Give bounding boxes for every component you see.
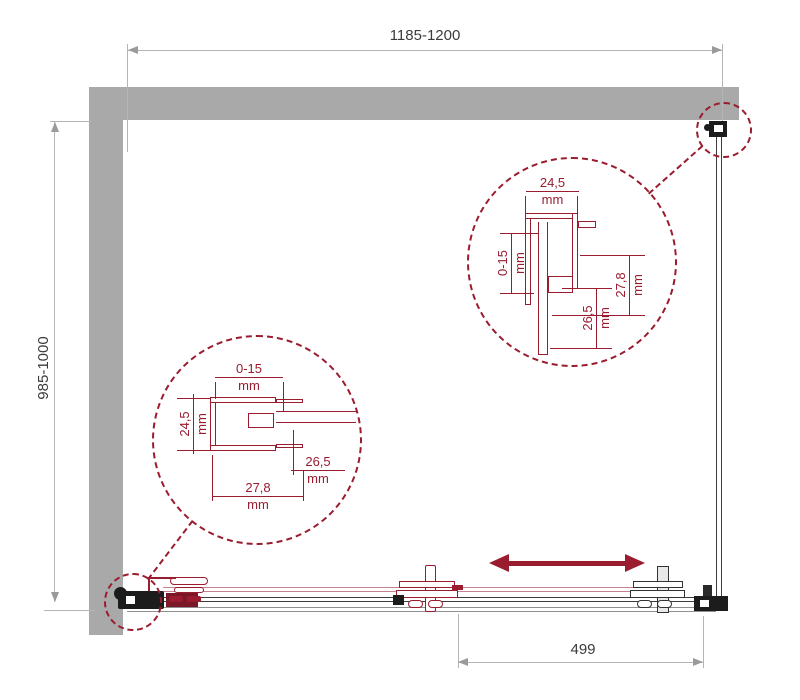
detail-tr-dim-profile-depth: 27,8 mm [613, 255, 645, 315]
dim-value: 24,5 [540, 176, 565, 190]
detail-tr-ext-5 [580, 255, 645, 256]
dim-value: 0-15 [236, 362, 262, 376]
dim-value: 24,5 [178, 411, 192, 436]
dimension-width-label: 1185-1200 [355, 27, 495, 44]
middle-carriage-pin [452, 585, 463, 590]
dim-unit: mm [513, 252, 527, 274]
detail-l-ext-3 [177, 398, 210, 399]
detail-l-dim-profile-width: 24,5 mm [177, 394, 209, 454]
detail-tr-ext-7 [562, 288, 612, 289]
detail-l-ext-5 [293, 430, 294, 475]
wall-profile-glass [538, 222, 548, 355]
detail-l-ext-7 [303, 470, 304, 501]
dimension-width-ext-left [127, 44, 128, 152]
dimension-depth-ext-bottom [44, 610, 95, 611]
dimension-depth-label: 985-1000 [35, 298, 53, 438]
bottom-right-corner-slot [700, 600, 709, 607]
callout-ring-bottom-left [104, 573, 162, 631]
dim-unit: mm [247, 498, 269, 512]
dimension-door-label: 499 [553, 641, 613, 658]
detail-tr-ext-8 [550, 348, 612, 349]
left-roller-mid [174, 587, 204, 593]
detail-l-ext-4 [177, 450, 210, 451]
detail-l-ext-1 [215, 382, 216, 399]
dimension-door-ext-right [703, 616, 704, 668]
dim-unit: mm [631, 274, 645, 296]
door-profile-glass [276, 411, 356, 423]
detail-tr-dim-profile-width: 24,5 mm [526, 176, 579, 206]
dimension-door-line [458, 662, 703, 663]
left-bracket-line-h [148, 577, 176, 579]
dim-value: 26,5 [581, 305, 595, 330]
detail-l-ext-6 [212, 455, 213, 501]
right-carriage-body [630, 590, 685, 598]
dimension-door-arrow-right [693, 658, 703, 666]
dim-value: 27,8 [245, 481, 270, 495]
dimension-width-arrow-right [712, 46, 722, 54]
dimension-depth-arrow-top [51, 122, 59, 132]
door-profile-top-lip [276, 399, 303, 403]
door-profile-bottom-bar [210, 445, 276, 451]
callout-leader-bottom-left [147, 520, 193, 580]
middle-carriage-body [396, 590, 458, 598]
dimension-width-line [128, 50, 722, 51]
door-profile-bottom-lip [276, 444, 303, 448]
fixed-glass-panel-right [716, 137, 722, 610]
dim-value: 26,5 [305, 455, 330, 469]
technical-drawing-canvas: 1185-1200 985-1000 499 [0, 0, 800, 700]
dim-unit: mm [238, 379, 260, 393]
middle-carriage-roller-1 [408, 600, 423, 608]
dimension-door-arrow-left [458, 658, 468, 666]
dim-value: 27,8 [614, 272, 628, 297]
right-carriage-roller-2 [657, 600, 672, 608]
dim-unit: mm [195, 413, 209, 435]
detail-tr-ext-1 [525, 196, 526, 215]
dimension-depth-arrow-bottom [51, 592, 59, 602]
detail-tr-ext-3 [500, 233, 538, 234]
bottom-rail-line [127, 607, 716, 612]
right-carriage-roller-1 [637, 600, 652, 608]
middle-carriage-stopper [393, 595, 404, 605]
wall-profile-snap-block [548, 276, 573, 293]
wall-profile-flange [578, 221, 596, 228]
middle-carriage-top-bar [399, 581, 455, 588]
wall-profile-top-bar [525, 213, 578, 219]
wall-left [89, 87, 123, 635]
door-profile-left-wall [210, 397, 216, 451]
detail-l-ext-2 [283, 382, 284, 412]
detail-l-dim-profile-depth: 27,8 mm [212, 481, 304, 511]
door-profile-top-bar [210, 397, 276, 403]
dimension-depth-line [54, 122, 55, 602]
slide-direction-arrow-shaft [506, 561, 628, 566]
callout-leader-top-right [648, 145, 703, 194]
wall-top [89, 87, 739, 120]
dimension-width-arrow-left [128, 46, 138, 54]
dim-unit: mm [307, 472, 329, 486]
bottom-right-corner-post [703, 585, 712, 596]
detail-tr-dim-inner-depth: 26,5 mm [580, 288, 612, 348]
right-carriage-top-bar [633, 581, 683, 588]
dim-unit: mm [598, 307, 612, 329]
callout-ring-top-right [696, 102, 752, 158]
door-profile-snap-block [248, 413, 274, 428]
left-roller-foot-1 [169, 596, 183, 602]
left-roller-foot-2 [187, 596, 201, 602]
middle-carriage-roller-2 [428, 600, 443, 608]
slide-direction-arrow-head-right [625, 554, 645, 572]
dim-unit: mm [542, 193, 564, 207]
slide-direction-arrow-head-left [489, 554, 509, 572]
detail-tr-ext-2 [577, 196, 578, 215]
detail-tr-ext-4 [500, 293, 534, 294]
dim-value: 0-15 [496, 250, 510, 276]
detail-l-dim-adjustment: 0-15 mm [215, 362, 283, 392]
detail-tr-dim-adjustment: 0-15 mm [495, 233, 527, 293]
